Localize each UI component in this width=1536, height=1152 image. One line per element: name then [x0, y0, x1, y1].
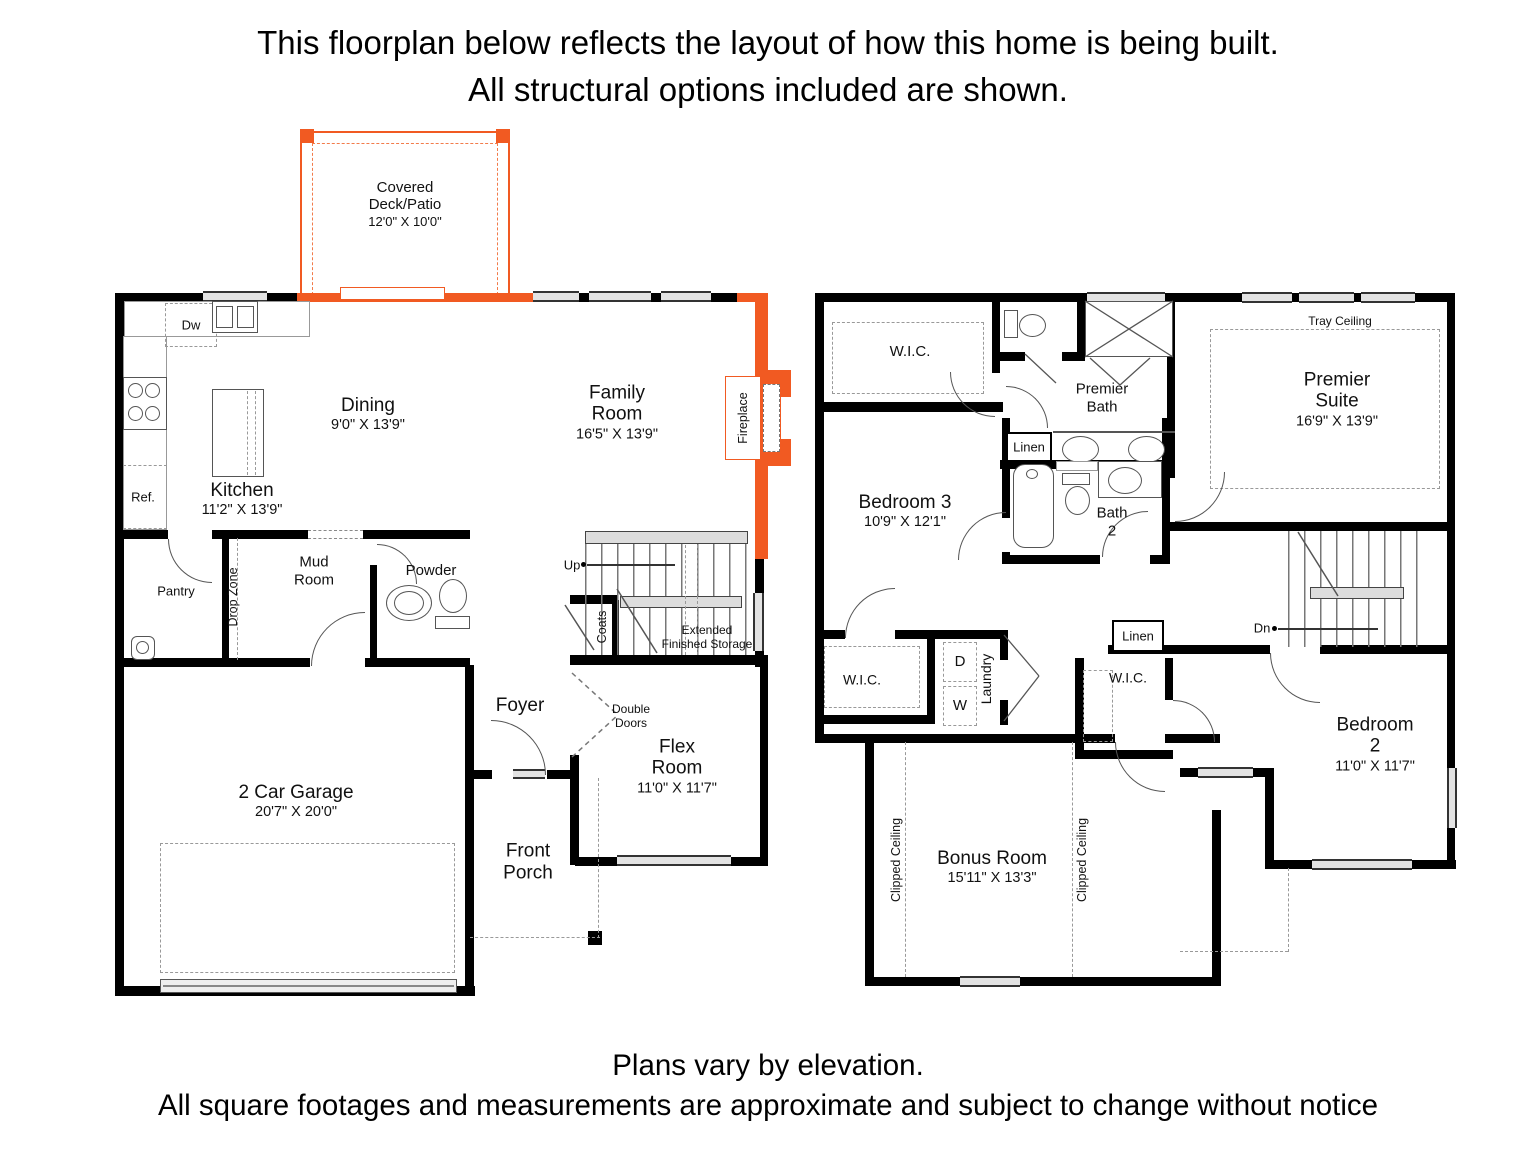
footer-line-2: All square footages and measurements are… — [0, 1086, 1536, 1126]
stove-burner — [145, 383, 160, 398]
stair-rail — [585, 531, 748, 544]
closet-door-leaf — [563, 603, 597, 653]
shower-x-icon — [1085, 301, 1173, 357]
premier-bath-label: Premier Bath — [1067, 380, 1137, 415]
open-below-dashed — [1288, 868, 1289, 952]
wall — [865, 734, 1115, 743]
bath2-sink — [1108, 467, 1142, 494]
door-swing — [1173, 700, 1215, 742]
premier-suite-label: Premier Suite 16'9" X 13'9" — [1292, 369, 1382, 430]
island-line — [247, 391, 248, 475]
wall — [865, 734, 874, 985]
deck-post — [496, 129, 510, 143]
bifold-doors-icon — [1002, 633, 1042, 723]
cased-opening — [308, 530, 363, 539]
toilet-tank — [1004, 310, 1018, 338]
stair-break-line — [615, 587, 660, 657]
drop-zone-label: Drop Zone — [226, 567, 240, 626]
footer-text: Plans vary by elevation. All square foot… — [0, 1046, 1536, 1126]
dining-label: Dining 9'0" X 13'9" — [331, 395, 405, 435]
wall — [927, 638, 935, 718]
window — [1198, 767, 1253, 778]
powder-sink — [439, 579, 467, 613]
tray-ceiling-label: Tray Ceiling — [1308, 314, 1372, 328]
vanity-sink — [1062, 436, 1099, 463]
wall — [570, 655, 768, 665]
wall — [992, 301, 1000, 373]
window — [589, 291, 651, 302]
tub-faucet — [1026, 469, 1038, 479]
up-guide-line — [587, 564, 675, 566]
header-line-2: All structural options included are show… — [0, 67, 1536, 114]
open-below-dashed — [1180, 951, 1288, 952]
wall — [865, 977, 1221, 986]
double-doors-label: Double Doors — [604, 702, 659, 730]
wall — [895, 630, 1003, 639]
window — [617, 855, 674, 866]
dishwasher-label: Dw — [182, 317, 201, 332]
window — [1361, 292, 1415, 303]
door-swing — [958, 512, 1006, 560]
porch-dashed-edge — [470, 937, 600, 938]
front-door-swing — [491, 720, 546, 775]
second-floor-plan: W.I.C. Premier Bath Linen Tray Ceiling P… — [810, 290, 1460, 985]
pantry-label: Pantry — [157, 583, 195, 598]
coats-label: Coats — [595, 611, 609, 644]
vanity-counter-edge — [1053, 431, 1175, 433]
bonus-room-label: Bonus Room 15'11" X 13'3" — [937, 848, 1047, 888]
clipped-ceiling-line — [905, 742, 906, 977]
stove-burner — [128, 383, 143, 398]
wall — [570, 755, 579, 865]
window — [753, 593, 764, 651]
footer-line-1: Plans vary by elevation. — [0, 1046, 1536, 1086]
dryer-label: D — [955, 653, 966, 671]
wall — [365, 658, 470, 667]
fireplace-notch — [781, 397, 793, 439]
toilet-door-leaf — [1023, 352, 1059, 386]
garage-apron-dashed — [160, 843, 455, 973]
bedroom3-label: Bedroom 3 10'9" X 12'1" — [859, 492, 952, 532]
garage-label: 2 Car Garage 20'7" X 20'0" — [238, 782, 353, 822]
door-swing — [1175, 472, 1225, 522]
wall — [465, 665, 474, 996]
mud-room-label: Mud Room — [284, 553, 344, 588]
wic-bed3-label: W.I.C. — [843, 672, 881, 689]
first-floor-plan: Covered Deck/Patio 12'0" X 10'0" — [115, 125, 805, 1000]
powder-label: Powder — [406, 562, 457, 580]
wall — [815, 293, 824, 743]
covered-deck-label: Covered Deck/Patio 12'0" X 10'0" — [358, 180, 453, 230]
fireplace-firebox — [763, 384, 780, 452]
wall — [1077, 301, 1085, 359]
wall — [363, 530, 470, 539]
vanity-sink — [1128, 436, 1165, 463]
window — [960, 976, 1020, 987]
island-line — [255, 391, 256, 475]
header-line-1: This floorplan below reflects the layout… — [0, 20, 1536, 67]
dn-marker-dot — [1272, 626, 1277, 631]
window — [533, 291, 579, 302]
door-swing — [311, 612, 365, 666]
window — [674, 855, 731, 866]
powder-toilet-bowl — [394, 591, 424, 615]
stove-burner — [145, 406, 160, 421]
wic-premier-label: W.I.C. — [890, 343, 931, 361]
wall — [1212, 810, 1221, 985]
dn-label: Dn — [1254, 620, 1271, 635]
kitchen-island — [212, 389, 264, 477]
door-swing — [845, 588, 895, 638]
wall — [470, 770, 492, 779]
up-label: Up — [564, 557, 581, 572]
clipped-ceiling-line — [1072, 742, 1073, 977]
stair-break-line — [1296, 530, 1341, 600]
extended-storage-label: Extended Finished Storage — [662, 623, 753, 651]
wall — [370, 565, 377, 660]
toilet-bowl — [1019, 314, 1046, 337]
sink-basin — [237, 306, 254, 328]
wall — [815, 715, 935, 724]
front-porch-label: Front Porch — [488, 841, 568, 886]
door-swing — [1006, 386, 1048, 428]
wall — [1165, 658, 1173, 700]
wall — [1002, 555, 1100, 564]
dn-guide-line — [1278, 628, 1378, 630]
up-marker-dot — [581, 562, 586, 567]
floorplan-sheet: This floorplan below reflects the layout… — [0, 0, 1536, 1152]
refrigerator-label: Ref. — [131, 489, 155, 504]
toilet-tank — [1062, 473, 1090, 485]
clipped-ceiling-label: Clipped Ceiling — [1075, 818, 1089, 902]
bath2-label: Bath 2 — [1097, 504, 1128, 539]
window — [1242, 292, 1292, 303]
powder-sink-base — [435, 616, 470, 629]
bedroom2-label: Bedroom 2 11'0" X 11'7" — [1333, 714, 1418, 775]
door-swing — [168, 539, 212, 583]
stove-burner — [128, 406, 143, 421]
wall — [547, 770, 570, 779]
wic-bed2-label: W.I.C. — [1109, 670, 1147, 687]
sink-basin — [216, 306, 233, 328]
porch-post — [588, 931, 602, 945]
window — [1447, 768, 1457, 828]
wall — [1162, 418, 1170, 563]
flex-room-label: Flex Room 11'0" X 11'7" — [637, 736, 717, 797]
wall — [123, 530, 168, 539]
wall — [815, 630, 845, 639]
sliding-door — [340, 287, 445, 300]
linen-label: Linen — [1013, 439, 1045, 454]
washer-label: W — [953, 697, 967, 715]
window — [661, 291, 711, 302]
laundry-label: Laundry — [978, 654, 994, 705]
header-text: This floorplan below reflects the layout… — [0, 20, 1536, 114]
foyer-label: Foyer — [496, 695, 545, 717]
window — [1312, 859, 1412, 870]
garage-door-line — [163, 985, 454, 987]
wall — [1000, 352, 1025, 361]
window — [1299, 292, 1354, 303]
family-room-label: Family Room 16'5" X 13'9" — [572, 382, 662, 443]
water-heater-coil — [136, 641, 149, 654]
wall — [1150, 555, 1170, 564]
wall — [1265, 768, 1274, 869]
deck-post — [300, 129, 314, 143]
kitchen-label: Kitchen 11'2" X 13'9" — [202, 480, 283, 520]
porch-dashed-edge — [598, 778, 599, 938]
toilet-shelf — [1056, 461, 1098, 471]
clipped-ceiling-label: Clipped Ceiling — [889, 818, 903, 902]
door-swing — [1115, 742, 1165, 792]
toilet-bowl — [1065, 486, 1090, 515]
wall — [1062, 352, 1085, 361]
fireplace-label: Fireplace — [736, 392, 750, 443]
linen-label: Linen — [1122, 628, 1154, 643]
door-swing — [1270, 653, 1320, 703]
wall — [760, 665, 768, 866]
